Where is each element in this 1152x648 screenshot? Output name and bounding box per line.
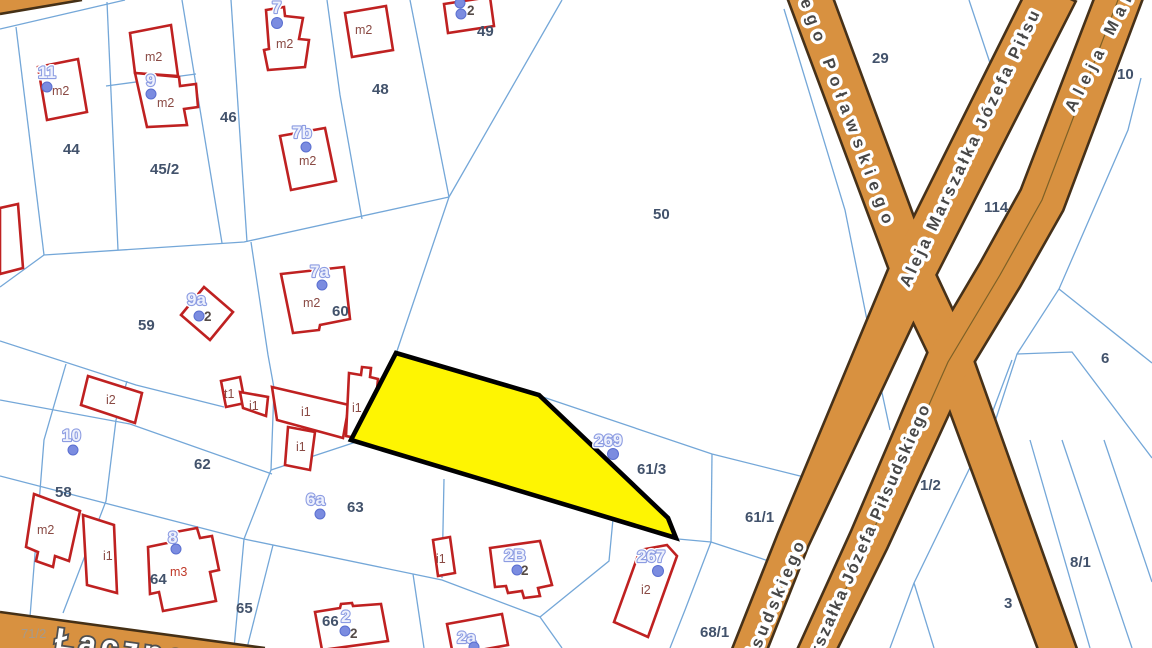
svg-text:6a: 6a [306, 490, 325, 509]
svg-text:29: 29 [872, 50, 889, 67]
svg-text:60: 60 [332, 303, 349, 320]
svg-text:t1: t1 [224, 387, 234, 401]
svg-text:m2: m2 [37, 523, 54, 537]
svg-text:62: 62 [194, 456, 211, 473]
svg-text:i2: i2 [641, 583, 651, 597]
svg-text:11: 11 [38, 63, 56, 82]
svg-text:45/2: 45/2 [150, 161, 179, 178]
svg-text:m2: m2 [276, 37, 293, 51]
svg-text:3: 3 [1004, 595, 1012, 612]
svg-text:i1: i1 [296, 440, 306, 454]
svg-text:71/2: 71/2 [21, 626, 46, 641]
svg-text:m2: m2 [157, 96, 174, 110]
svg-text:8/1: 8/1 [1070, 554, 1091, 571]
svg-text:7: 7 [272, 0, 281, 17]
svg-text:68/1: 68/1 [700, 624, 729, 641]
svg-text:44: 44 [63, 141, 80, 158]
svg-text:2: 2 [341, 607, 350, 626]
svg-text:i1: i1 [352, 401, 362, 415]
svg-text:267: 267 [637, 547, 665, 566]
svg-text:7b: 7b [292, 123, 312, 142]
svg-text:269: 269 [594, 431, 622, 450]
svg-text:64: 64 [150, 571, 167, 588]
svg-text:49: 49 [477, 23, 494, 40]
svg-text:m2: m2 [145, 50, 162, 64]
svg-text:10: 10 [62, 426, 81, 445]
svg-text:m2: m2 [355, 23, 372, 37]
svg-text:m2: m2 [299, 154, 316, 168]
svg-text:i1: i1 [103, 549, 113, 563]
svg-text:2: 2 [350, 626, 358, 641]
svg-text:2: 2 [467, 3, 475, 18]
svg-text:61/1: 61/1 [745, 509, 774, 526]
svg-text:63: 63 [347, 499, 364, 516]
svg-text:46: 46 [220, 109, 237, 126]
svg-text:59: 59 [138, 317, 155, 334]
svg-text:50: 50 [653, 206, 670, 223]
svg-text:i1: i1 [436, 552, 446, 566]
svg-text:2: 2 [204, 309, 212, 324]
svg-text:m2: m2 [52, 84, 69, 98]
svg-text:6: 6 [1101, 350, 1109, 367]
svg-text:61/3: 61/3 [637, 461, 666, 478]
svg-text:48: 48 [372, 81, 389, 98]
svg-text:9a: 9a [187, 290, 206, 309]
svg-text:m2: m2 [303, 296, 320, 310]
svg-text:65: 65 [236, 600, 253, 617]
svg-text:i1: i1 [249, 399, 259, 413]
svg-text:7a: 7a [310, 262, 329, 281]
svg-text:i1: i1 [301, 405, 311, 419]
svg-text:58: 58 [55, 484, 72, 501]
svg-text:i2: i2 [106, 393, 116, 407]
svg-text:114: 114 [984, 199, 1009, 216]
svg-text:66: 66 [322, 613, 339, 630]
svg-text:1/2: 1/2 [920, 477, 941, 494]
svg-text:m3: m3 [170, 565, 187, 579]
svg-text:10: 10 [1117, 66, 1134, 83]
svg-text:9: 9 [146, 71, 155, 90]
